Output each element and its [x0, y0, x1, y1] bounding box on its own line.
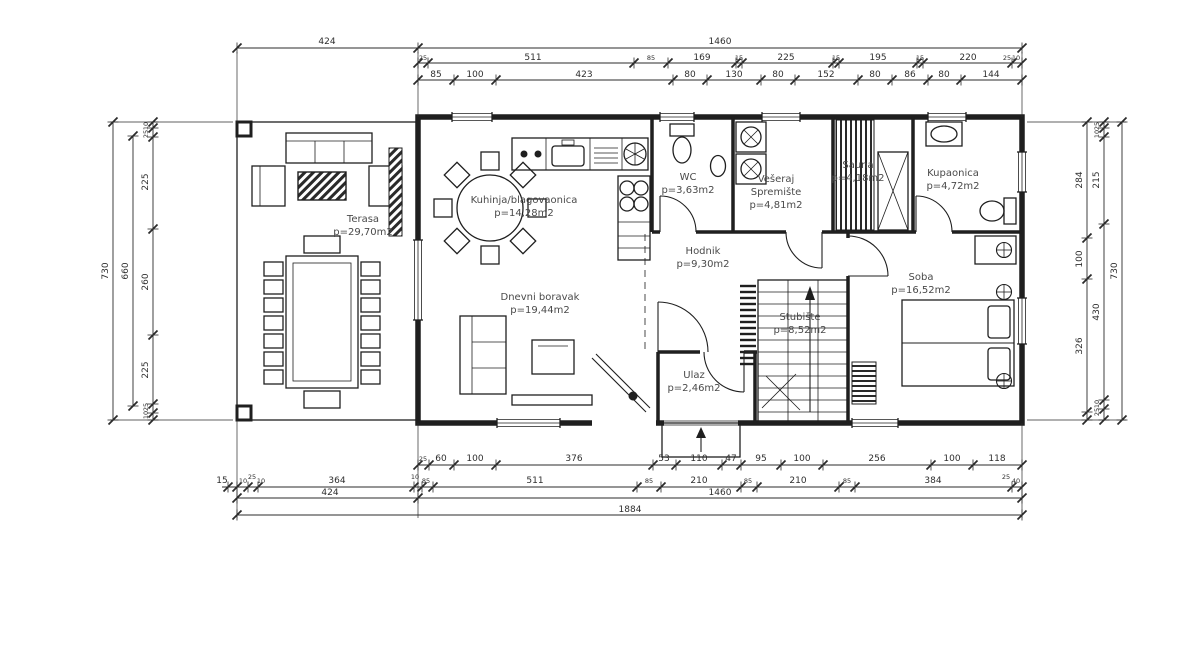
dim-label: 25: [1002, 473, 1010, 481]
dim-label: 100: [466, 70, 483, 80]
terrace: [237, 122, 418, 420]
coffee-table: [298, 172, 346, 200]
ceiling-symbol: [997, 285, 1012, 300]
dim-label: 511: [526, 476, 543, 486]
hob-dot: [521, 151, 528, 158]
kitchen-counter: [512, 138, 648, 170]
dim-label: 511: [524, 53, 541, 63]
radiator: [852, 362, 876, 404]
coffee-table: [532, 340, 574, 374]
room-label-hodnik: Hodnikp=9,30m2: [676, 246, 729, 270]
door-laundry: [786, 232, 822, 268]
window: [1017, 298, 1027, 344]
dim-label: 60: [435, 454, 447, 464]
ceiling-symbol: [997, 243, 1012, 258]
dim-label: 85: [422, 477, 430, 485]
dim-label: 10: [1012, 54, 1020, 62]
dim-label: 15: [916, 54, 924, 62]
toilet-tank: [1004, 198, 1016, 224]
dim-label: 1460: [709, 488, 732, 498]
dim-label: 100: [943, 454, 960, 464]
room-label-wc: WCp=3,63m2: [661, 172, 714, 196]
dim-label: 376: [565, 454, 582, 464]
dim-label: 100: [466, 454, 483, 464]
dim-label: 423: [575, 70, 592, 80]
floor-plan-svg: 4241460255118516915225151951522025108510…: [0, 0, 1200, 666]
entrance-arrow: [696, 427, 706, 452]
sink: [552, 146, 584, 166]
dim-label: 100: [1075, 250, 1085, 267]
dim-label: 25: [419, 455, 427, 463]
dim-label: 85: [647, 54, 655, 62]
dim-label: 284: [1075, 171, 1085, 188]
dim-label: 85: [843, 477, 851, 485]
dim-label: 80: [684, 70, 696, 80]
dim-label: 15: [735, 54, 743, 62]
window: [660, 112, 694, 122]
stair-comb: [740, 286, 756, 364]
dim-label: 10: [142, 122, 150, 130]
door-bedroom: [848, 236, 888, 276]
dim-label: 80: [869, 70, 881, 80]
dim-label: 130: [725, 70, 742, 80]
room-label-dnevni-boravak: Dnevni boravakp=19,44m2: [501, 292, 580, 316]
ceiling-symbol: [997, 374, 1012, 389]
dim-label: 80: [938, 70, 950, 80]
dim-label: 47: [725, 454, 736, 464]
door-bathroom: [916, 196, 952, 232]
corner-window: [592, 354, 656, 428]
dim-label: 25: [1093, 408, 1101, 416]
dim-label: 220: [959, 53, 976, 63]
dim-label: 85: [645, 477, 653, 485]
terrace-sofa: [252, 133, 402, 206]
dim-label: 25: [142, 403, 150, 411]
door-living: [658, 302, 708, 352]
dimension-lines: [108, 43, 1128, 521]
bedroom-furniture: [852, 236, 1016, 404]
dim-label: 730: [101, 262, 111, 279]
dim-label: 730: [1110, 262, 1120, 279]
window: [1017, 152, 1027, 192]
toilet-tank: [670, 124, 694, 136]
dim-label: 118: [988, 454, 1005, 464]
sofa: [460, 316, 506, 394]
window: [413, 240, 423, 320]
window: [452, 112, 492, 122]
dim-label: 110: [690, 454, 707, 464]
toilet-bowl: [980, 201, 1004, 221]
dim-label: 260: [141, 273, 151, 290]
windows: [413, 112, 1027, 428]
dim-label: 10: [239, 477, 247, 485]
living-room-furniture: [460, 316, 592, 405]
door-wc: [660, 196, 696, 232]
window: [852, 418, 898, 428]
dim-label: 85: [744, 477, 752, 485]
room-label-stubiste: Stubištep=8,52m2: [773, 311, 826, 336]
stairs-up-arrow: [805, 286, 815, 412]
dim-label: 144: [982, 70, 999, 80]
dim-label: 10: [411, 473, 419, 481]
dim-label: 25: [1093, 122, 1101, 130]
dim-label: 215: [1092, 171, 1102, 188]
terrace-dining-table: [264, 236, 380, 408]
wc-fixtures: [670, 124, 726, 177]
dimension-labels: 4241460255118516915225151951522025108510…: [101, 37, 1120, 515]
room-label-ulaz: Ulazp=2,46m2: [667, 370, 720, 394]
dim-label: 660: [121, 262, 131, 279]
terrace-post: [237, 122, 251, 136]
dim-label: 384: [924, 476, 941, 486]
dim-label: 53: [658, 454, 669, 464]
dim-label: 225: [141, 361, 151, 378]
dim-label: 25: [142, 130, 150, 138]
walls: [418, 117, 1022, 423]
dim-label: 25: [419, 54, 427, 62]
dim-label: 86: [904, 70, 916, 80]
dim-label: 256: [868, 454, 885, 464]
dim-label: 40: [1012, 477, 1020, 485]
window: [762, 112, 800, 122]
window: [497, 418, 560, 428]
room-label-kuhinja-blagovaonica: Kuhinja/blagovaonicap=14,28m2: [471, 195, 578, 219]
dim-label: 424: [321, 488, 338, 498]
dim-label: 10: [1093, 130, 1101, 138]
washbasin: [711, 156, 726, 177]
dim-label: 1460: [709, 37, 732, 47]
dim-label: 10: [1093, 400, 1101, 408]
toilet-bowl: [673, 137, 691, 163]
room-label-terasa: Terasap=29,70m2: [333, 214, 392, 238]
dim-label: 95: [755, 454, 766, 464]
dim-label: 25: [1003, 54, 1011, 62]
dim-label: 152: [817, 70, 834, 80]
dim-label: 25: [248, 473, 256, 481]
floor-plan: 4241460255118516915225151951522025108510…: [0, 0, 1200, 666]
room-label-kupaonica: Kupaonicap=4,72m2: [926, 168, 979, 192]
dim-label: 15: [832, 54, 840, 62]
dim-label: 1884: [619, 505, 642, 515]
column-dot: [629, 392, 638, 401]
dim-label: 225: [777, 53, 794, 63]
dim-label: 225: [141, 173, 151, 190]
dim-label: 364: [328, 476, 345, 486]
dim-label: 10: [142, 411, 150, 419]
room-label-soba: Sobap=16,52m2: [891, 272, 950, 296]
hatched-strip: [389, 148, 402, 236]
tv-bench: [512, 395, 592, 405]
dim-label: 326: [1075, 337, 1085, 354]
dim-label: 10: [257, 477, 265, 485]
dim-label: 85: [430, 70, 441, 80]
dim-label: 80: [772, 70, 784, 80]
window: [928, 112, 966, 122]
dim-label: 169: [693, 53, 710, 63]
hob-dot: [535, 151, 542, 158]
dim-label: 195: [869, 53, 886, 63]
pillow: [988, 306, 1010, 338]
entrance-porch: [662, 423, 740, 457]
terrace-post: [237, 406, 251, 420]
dim-label: 15: [216, 476, 227, 486]
dim-label: 100: [793, 454, 810, 464]
room-label-veseraj-spremiste: VešerajSpremištep=4,81m2: [749, 173, 802, 211]
dim-label: 430: [1092, 303, 1102, 320]
dim-label: 210: [690, 476, 707, 486]
dim-label: 424: [318, 37, 335, 47]
dim-label: 210: [789, 476, 806, 486]
